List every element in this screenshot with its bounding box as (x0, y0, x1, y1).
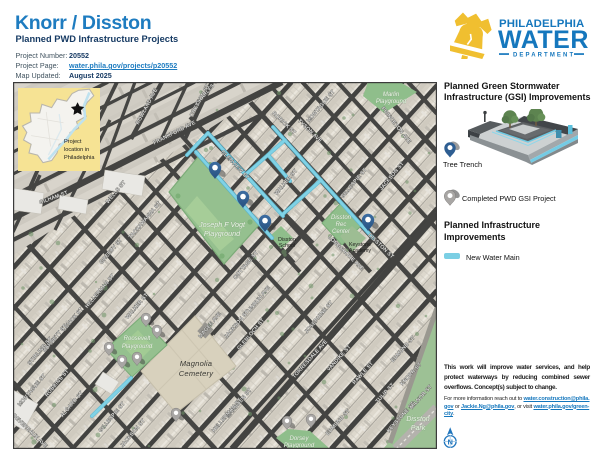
svg-text:Rec: Rec (336, 222, 347, 228)
svg-text:Playground: Playground (122, 344, 153, 350)
svg-text:N: N (447, 437, 452, 446)
svg-text:Playground: Playground (376, 99, 407, 105)
svg-text:Center: Center (332, 229, 351, 235)
svg-text:Philadelphia: Philadelphia (64, 155, 95, 161)
svg-text:Disston: Disston (331, 215, 352, 221)
svg-text:Joseph F Vogt: Joseph F Vogt (198, 220, 246, 229)
svg-text:location in: location in (64, 147, 89, 153)
svg-text:Academy: Academy (349, 248, 371, 254)
svg-text:Cemetery: Cemetery (179, 369, 215, 378)
svg-text:Park: Park (411, 425, 426, 432)
svg-text:School: School (279, 243, 295, 249)
svg-text:Roosevelt: Roosevelt (124, 336, 151, 342)
svg-text:Project: Project (64, 139, 82, 145)
svg-text:Marlin: Marlin (383, 92, 400, 98)
svg-text:Playground: Playground (204, 229, 241, 238)
svg-text:Disston: Disston (406, 416, 429, 423)
svg-text:Magnolia: Magnolia (180, 359, 212, 368)
svg-text:Dorsey: Dorsey (289, 436, 309, 442)
